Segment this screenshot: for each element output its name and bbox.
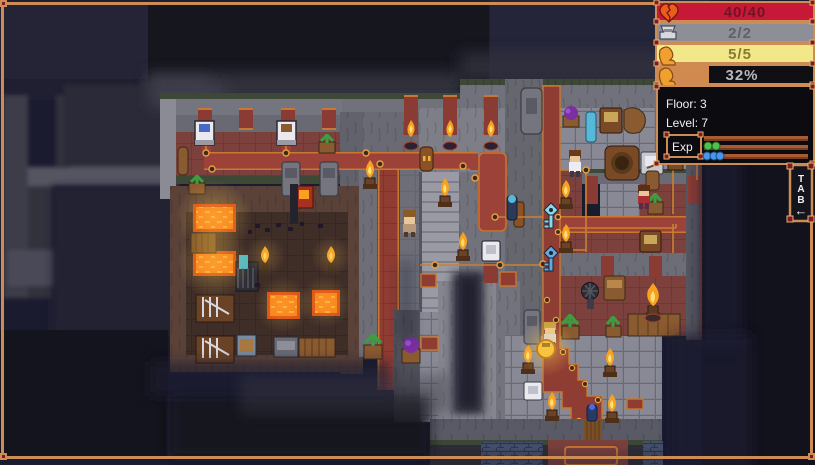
svg-text:2/2: 2/2 [728,25,752,42]
svg-text:5/5: 5/5 [728,46,752,63]
svg-text:A: A [797,184,804,195]
svg-text:Floor: 3: Floor: 3 [666,97,707,111]
svg-text:32%: 32% [725,67,758,84]
svg-text:←: ← [795,203,808,218]
svg-text:Exp: Exp [672,140,693,154]
svg-text:Level: 7: Level: 7 [666,116,708,130]
svg-text:40/40: 40/40 [724,4,767,21]
